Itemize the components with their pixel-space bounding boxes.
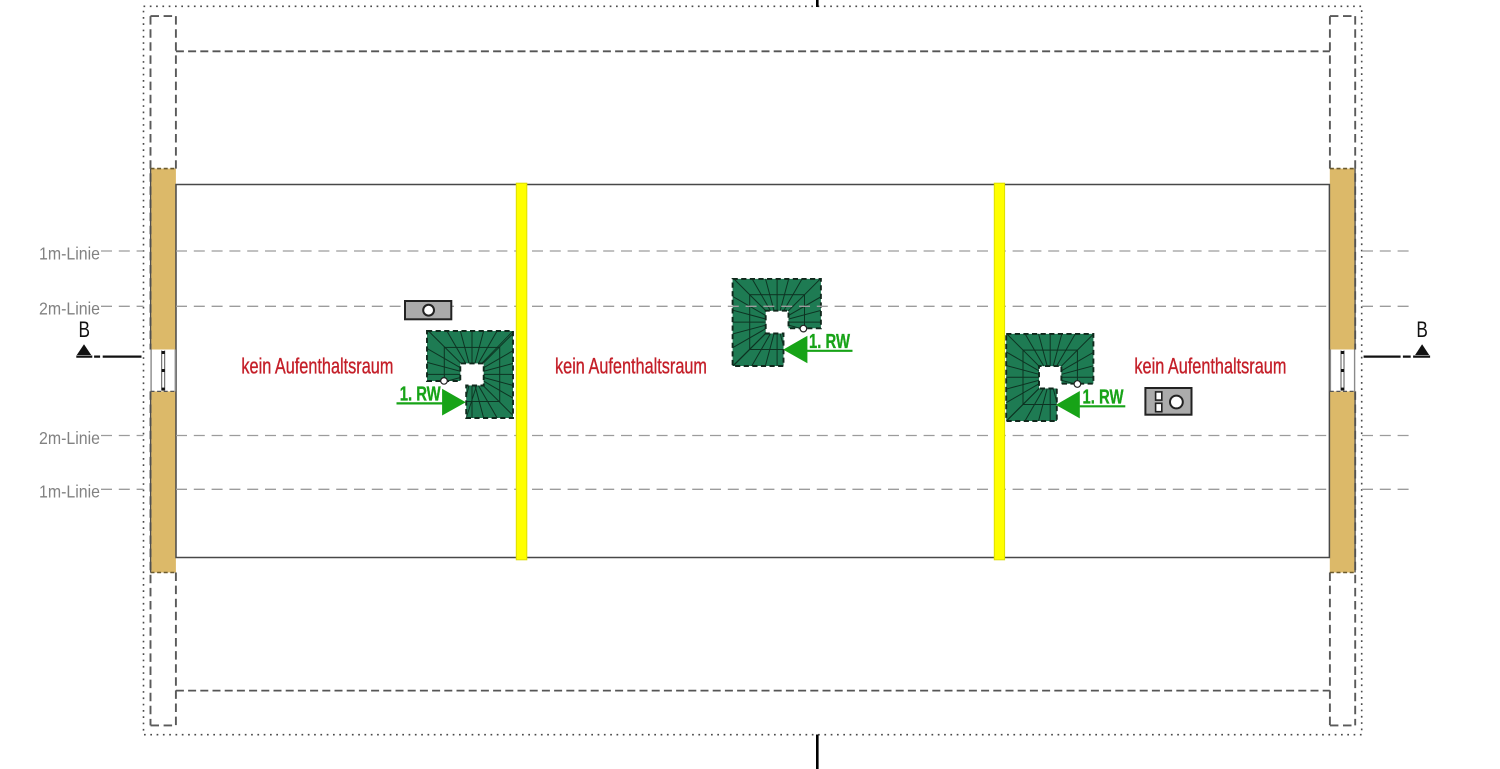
svg-text:kein Aufenthaltsraum: kein Aufenthaltsraum (1134, 353, 1286, 378)
svg-text:2m-Linie: 2m-Linie (39, 299, 100, 319)
svg-text:1m-Linie: 1m-Linie (39, 482, 100, 502)
svg-text:B: B (1416, 317, 1428, 342)
svg-text:1. RW: 1. RW (809, 331, 850, 353)
svg-text:kein Aufenthaltsraum: kein Aufenthaltsraum (241, 353, 393, 378)
svg-text:B: B (79, 317, 91, 342)
svg-text:2m-Linie: 2m-Linie (39, 428, 100, 448)
svg-text:kein Aufenthaltsraum: kein Aufenthaltsraum (555, 353, 707, 378)
svg-text:1m-Linie: 1m-Linie (39, 243, 100, 263)
